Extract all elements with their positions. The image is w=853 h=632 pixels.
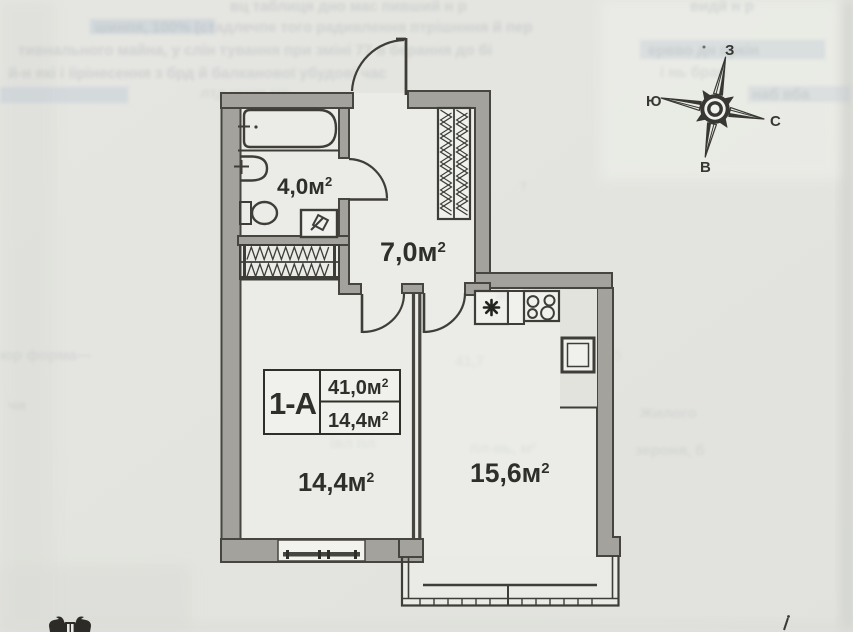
svg-text:вц таблиця дно мас пивший: вц таблиця дно мас пивший н р [230, 0, 467, 15]
svg-text:тивнального майна, у слін т: тивнального майна, у слін тування при зм… [18, 42, 492, 59]
svg-text:івл пл: івл пл [330, 435, 375, 452]
svg-text:и: и [497, 287, 506, 304]
svg-text:4,0м2: 4,0м2 [277, 174, 332, 199]
svg-text:41,0м2: 41,0м2 [328, 376, 389, 399]
svg-text:С: С [770, 113, 781, 130]
svg-text:наб вба: наб вба [752, 86, 810, 103]
svg-text:З: З [725, 42, 734, 59]
svg-text:7,0м2: 7,0м2 [380, 237, 446, 267]
svg-text:Ю: Ю [646, 93, 661, 110]
svg-text:шинпя, 100% (стадлечпе того р: шинпя, 100% (стадлечпе того радивлення п… [95, 19, 533, 36]
svg-text:ервво дн пркін: ервво дн пркін [648, 42, 759, 59]
svg-text:14,4м2: 14,4м2 [298, 469, 375, 497]
svg-text:пл-нь, м²: пл-нь, м² [470, 440, 536, 457]
svg-text:й-н які і іірінесення з брд: й-н які і іірінесення з брд й балканової… [8, 65, 387, 82]
svg-text:41,7: 41,7 [455, 353, 484, 370]
svg-text:В: В [700, 159, 711, 176]
svg-text:Жилого: Жилого [639, 405, 696, 422]
svg-text:14,4м2: 14,4м2 [328, 409, 389, 432]
svg-text:15,6м2: 15,6м2 [470, 458, 550, 488]
svg-text:юр форма—: юр форма— [0, 347, 91, 364]
svg-text:зероня, б: зероня, б [635, 442, 704, 459]
svg-text:видй н р: видй н р [690, 0, 754, 15]
svg-text:чи: чи [8, 397, 26, 414]
svg-text:і нь бран: і нь бран [660, 64, 727, 81]
svg-text:т: т [520, 177, 527, 194]
svg-text:1-А: 1-А [269, 386, 317, 421]
